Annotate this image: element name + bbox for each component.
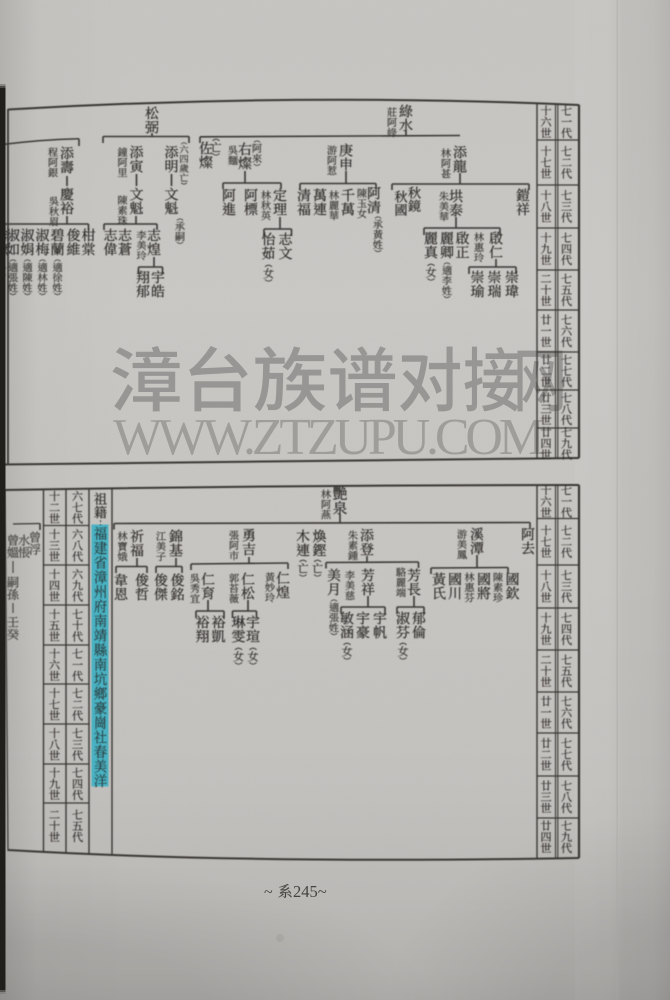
svg-text:245~: 245~ [293,882,327,901]
svg-text:WWW.ZTZUPU.COM: WWW.ZTZUPU.COM [113,409,545,466]
svg-text:~: ~ [264,884,273,901]
